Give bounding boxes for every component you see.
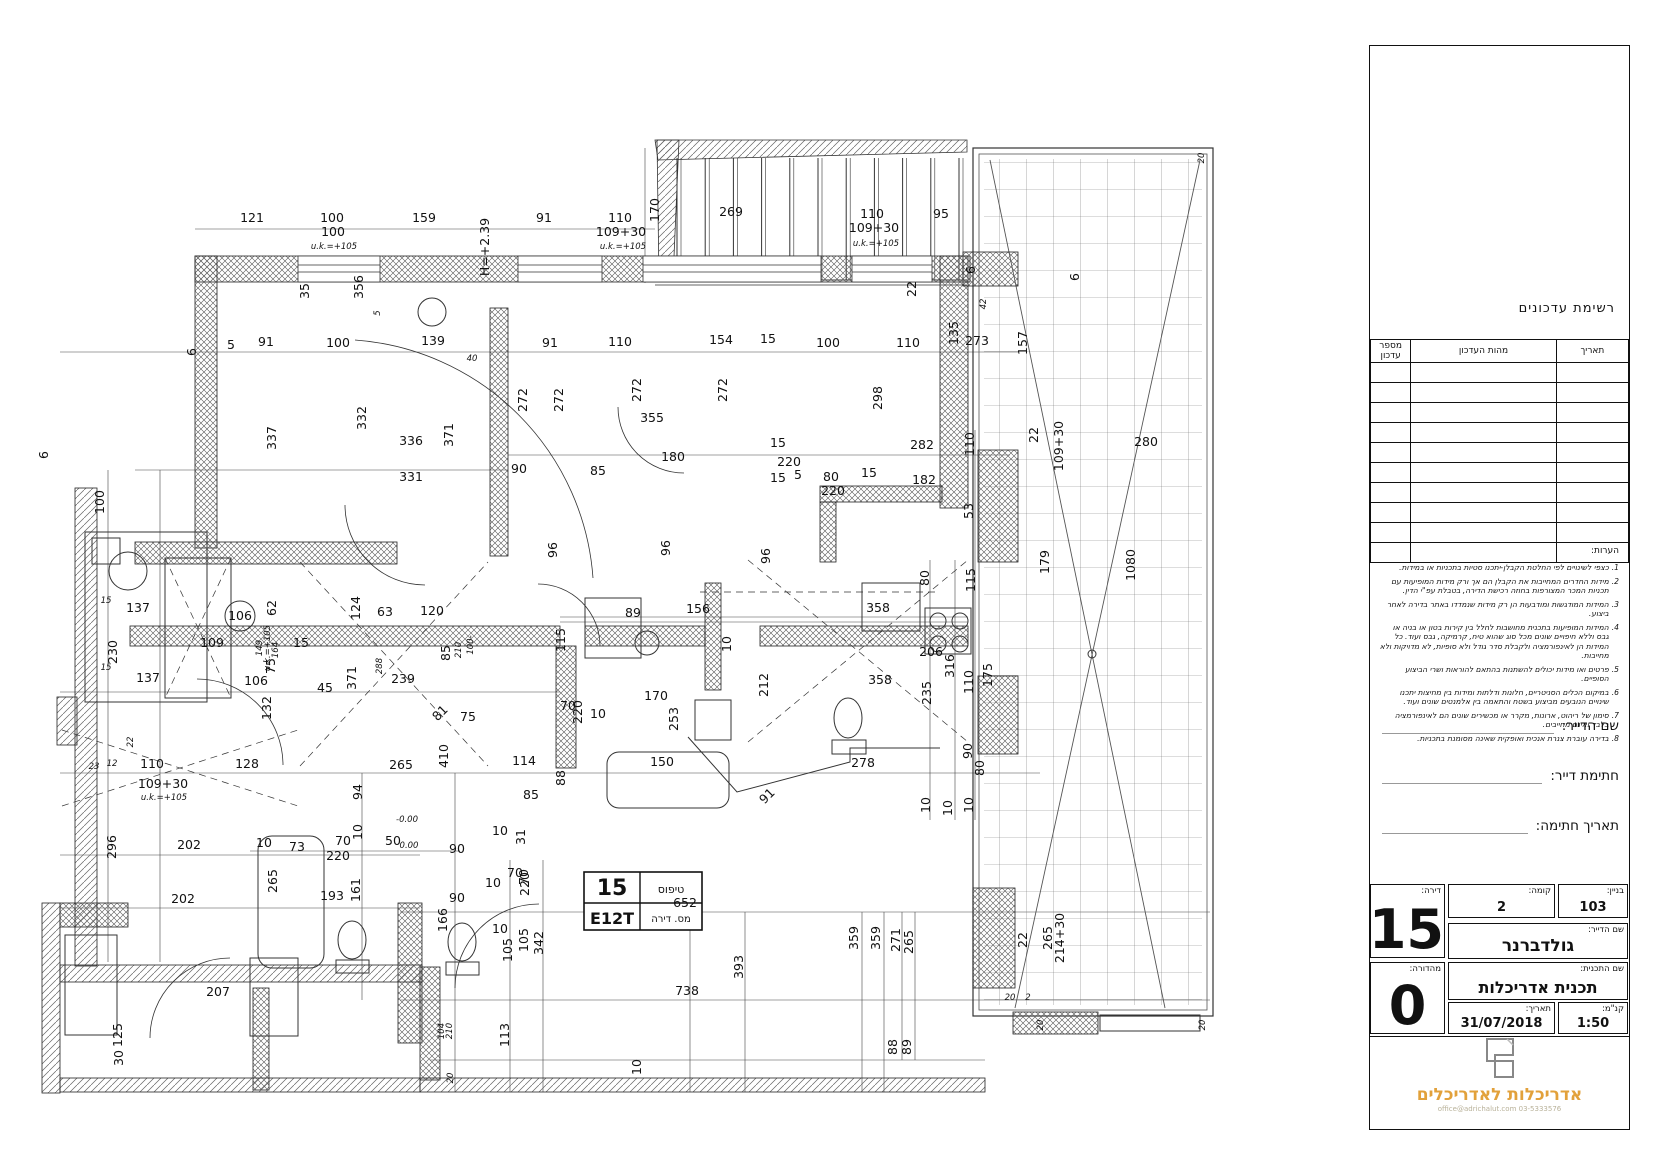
svg-text:96: 96	[545, 542, 560, 558]
revisions-col-date: תאריך	[1556, 340, 1628, 363]
note-item: 5.פרטים ואו מידות יכולים להשתנות בהתאם ל…	[1378, 665, 1619, 684]
svg-text:170: 170	[644, 688, 668, 703]
svg-text:5: 5	[794, 467, 802, 482]
svg-text:12: 12	[107, 759, 118, 769]
svg-text:10: 10	[629, 1059, 644, 1075]
svg-text:358: 358	[866, 600, 890, 615]
tenant-sign-label: חתימת דייר:	[1550, 768, 1619, 784]
svg-text:6: 6	[184, 348, 199, 356]
svg-text:150: 150	[650, 754, 674, 769]
svg-text:31: 31	[513, 829, 528, 845]
tenant-name-label: שם הדייר:	[1562, 718, 1619, 734]
svg-text:10: 10	[350, 824, 365, 840]
svg-text:110: 110	[608, 334, 632, 349]
building-label: בניין:	[1607, 886, 1624, 896]
svg-text:u.k.=+105: u.k.=+105	[853, 239, 899, 249]
svg-text:15: 15	[101, 663, 112, 673]
edition-value: 0	[1371, 979, 1444, 1033]
svg-text:10: 10	[256, 835, 272, 850]
svg-text:336: 336	[399, 433, 423, 448]
svg-text:154: 154	[709, 332, 733, 347]
edition-label: מהדורה:	[1410, 964, 1442, 974]
svg-text:1080: 1080	[1123, 549, 1138, 581]
floor-value: 2	[1449, 900, 1554, 915]
svg-text:15: 15	[293, 635, 309, 650]
svg-text:15: 15	[770, 435, 786, 450]
svg-text:269: 269	[719, 204, 743, 219]
svg-text:10: 10	[719, 636, 734, 652]
svg-text:6: 6	[963, 266, 978, 274]
svg-text:91: 91	[756, 785, 778, 807]
svg-text:90: 90	[960, 743, 975, 759]
plan-name-box: שם התכנית: תכנית אדריכלות	[1448, 962, 1628, 1000]
svg-text:137: 137	[126, 600, 150, 615]
note-item: 4.המידות המופיעות בתכנית מחושבות לחלל בי…	[1378, 623, 1619, 661]
signature-section: שם הדייר: חתימת דייר: תאריך חתימה:	[1382, 718, 1619, 868]
svg-text:22: 22	[904, 281, 919, 297]
scale-box: קנ"מ: 1:50	[1558, 1002, 1628, 1034]
drawing-sheet: 15טיפוסE12Tמס. דירה121100100u.k.=+105159…	[0, 0, 1657, 1172]
svg-text:85: 85	[590, 463, 606, 478]
svg-text:100: 100	[816, 335, 840, 350]
svg-text:179: 179	[1037, 550, 1052, 574]
svg-text:109+30: 109+30	[596, 224, 646, 239]
date-box: תאריך: 31/07/2018	[1448, 1002, 1555, 1034]
svg-text:298: 298	[870, 386, 885, 410]
svg-text:110: 110	[961, 670, 976, 694]
svg-text:210: 210	[445, 1023, 455, 1039]
tenant-label: שם הדייר:	[1588, 925, 1624, 935]
svg-text:80: 80	[972, 760, 987, 776]
svg-text:15: 15	[861, 465, 877, 480]
svg-text:212: 212	[756, 673, 771, 697]
svg-text:88: 88	[553, 770, 568, 786]
svg-text:180: 180	[661, 449, 685, 464]
svg-text:-0.00: -0.00	[396, 815, 418, 825]
revision-row	[1371, 523, 1629, 543]
svg-text:15: 15	[760, 331, 776, 346]
svg-text:53: 53	[961, 503, 976, 519]
svg-text:2: 2	[1025, 993, 1030, 1003]
svg-text:96: 96	[658, 540, 673, 556]
note-item: 6.במיקום הכלים הסניטריים, חלונות ודלתות …	[1378, 688, 1619, 707]
svg-text:106: 106	[244, 673, 268, 688]
svg-text:80: 80	[917, 570, 932, 586]
svg-text:105: 105	[516, 928, 531, 952]
svg-text:45: 45	[317, 680, 333, 695]
svg-text:265: 265	[901, 930, 916, 954]
svg-text:161: 161	[348, 878, 363, 902]
svg-text:125: 125	[110, 1023, 125, 1047]
note-item: 3.המידות המודגשות ומודבעות הן רק מידות ש…	[1378, 600, 1619, 619]
apartment-value: 15	[1371, 903, 1444, 957]
svg-text:20: 20	[1005, 993, 1016, 1003]
svg-text:75: 75	[263, 658, 278, 674]
notes-title: הערות:	[1378, 546, 1619, 557]
svg-text:23: 23	[89, 762, 100, 772]
svg-text:u.k.=+105: u.k.=+105	[311, 242, 357, 252]
svg-text:113: 113	[497, 1023, 512, 1047]
svg-text:0.00: 0.00	[400, 841, 419, 851]
svg-text:u.k.=+105: u.k.=+105	[600, 242, 646, 252]
logo-contact: office@adrichalut.com 03-5333576	[1370, 1105, 1629, 1113]
title-block: רשימת עדכונים תאריך מהות העדכון מספר עדכ…	[1369, 45, 1630, 1130]
svg-text:E12T: E12T	[590, 909, 634, 928]
tenant-value: גולדברנר	[1449, 936, 1627, 956]
svg-text:265: 265	[265, 869, 280, 893]
tenant-box: שם הדייר: גולדברנר	[1448, 923, 1628, 959]
svg-text:272: 272	[515, 388, 530, 412]
svg-text:272: 272	[629, 378, 644, 402]
revisions-col-desc: מהות העדכון	[1411, 340, 1557, 363]
svg-text:63: 63	[377, 604, 393, 619]
svg-text:359: 359	[868, 926, 883, 950]
svg-text:316: 316	[942, 654, 957, 678]
svg-text:15: 15	[770, 470, 786, 485]
building-value: 103	[1559, 900, 1627, 915]
svg-text:159: 159	[412, 210, 436, 225]
svg-text:342: 342	[531, 931, 546, 955]
building-box: בניין: 103	[1558, 884, 1628, 918]
svg-text:5: 5	[227, 337, 235, 352]
revisions-table: תאריך מהות העדכון מספר עדכון	[1370, 339, 1629, 563]
svg-text:22: 22	[126, 737, 136, 748]
svg-text:278: 278	[851, 755, 875, 770]
svg-text:124: 124	[348, 596, 363, 620]
svg-text:109: 109	[200, 635, 224, 650]
svg-text:20: 20	[1036, 1020, 1046, 1031]
svg-text:85: 85	[438, 645, 453, 661]
svg-text:100: 100	[321, 224, 345, 239]
svg-text:356: 356	[351, 275, 366, 299]
svg-text:110: 110	[896, 335, 920, 350]
svg-text:114: 114	[512, 753, 536, 768]
svg-text:10: 10	[590, 706, 606, 721]
svg-text:96: 96	[758, 548, 773, 564]
svg-text:410: 410	[436, 744, 451, 768]
svg-text:156: 156	[686, 601, 710, 616]
notes-list: 1.כצפי לשינויים לפי החלטת הקבלן-יתכנו סט…	[1378, 563, 1619, 743]
svg-text:371: 371	[344, 666, 359, 690]
svg-text:15: 15	[101, 596, 112, 606]
svg-text:10: 10	[492, 921, 508, 936]
sign-date-label: תאריך חתימה:	[1536, 818, 1619, 834]
svg-text:332: 332	[354, 406, 369, 430]
svg-text:235: 235	[919, 681, 934, 705]
svg-text:120: 120	[420, 603, 444, 618]
svg-text:121: 121	[240, 210, 264, 225]
svg-text:91: 91	[536, 210, 552, 225]
svg-text:282: 282	[910, 437, 934, 452]
svg-text:22: 22	[1015, 932, 1030, 948]
svg-text:10: 10	[940, 800, 955, 816]
svg-text:220: 220	[517, 872, 532, 896]
svg-text:288: 288	[375, 657, 385, 674]
revision-row	[1371, 463, 1629, 483]
svg-text:280: 280	[1134, 434, 1158, 449]
floor-plan: 15טיפוסE12Tמס. דירה121100100u.k.=+105159…	[0, 0, 1290, 1172]
svg-text:100: 100	[326, 335, 350, 350]
svg-text:62: 62	[264, 600, 279, 616]
svg-text:80: 80	[823, 469, 839, 484]
svg-text:30: 30	[111, 1050, 126, 1066]
floor-label: קומה:	[1528, 886, 1551, 896]
logo-box: אדריכלות לאדריכלים office@adrichalut.com…	[1370, 1036, 1629, 1128]
svg-text:393: 393	[731, 955, 746, 979]
svg-text:331: 331	[399, 469, 423, 484]
floor-box: קומה: 2	[1448, 884, 1555, 918]
svg-text:115: 115	[963, 568, 978, 592]
svg-text:20: 20	[1198, 1020, 1208, 1031]
sign-date-line[interactable]	[1382, 819, 1528, 834]
svg-text:220: 220	[777, 454, 801, 469]
svg-text:207: 207	[206, 984, 230, 999]
plan-name-label: שם התכנית:	[1580, 964, 1624, 974]
svg-text:132: 132	[259, 696, 274, 720]
note-item: 2.מידות החדרים המחייבות את הקבלן הם אך ו…	[1378, 577, 1619, 596]
svg-text:110: 110	[860, 206, 884, 221]
svg-text:193: 193	[320, 888, 344, 903]
svg-text:94: 94	[350, 784, 365, 800]
svg-text:90: 90	[449, 841, 465, 856]
svg-text:296: 296	[104, 835, 119, 859]
svg-text:738: 738	[675, 983, 699, 998]
revision-row	[1371, 503, 1629, 523]
svg-text:105: 105	[500, 938, 515, 962]
svg-text:90: 90	[449, 890, 465, 905]
date-value: 31/07/2018	[1449, 1016, 1554, 1031]
svg-text:220: 220	[326, 848, 350, 863]
walls	[42, 252, 1098, 1093]
svg-text:70: 70	[335, 833, 351, 848]
svg-text:272: 272	[551, 388, 566, 412]
svg-text:100: 100	[92, 490, 107, 514]
svg-text:35: 35	[297, 283, 312, 299]
svg-text:10: 10	[961, 797, 976, 813]
svg-text:89: 89	[899, 1039, 914, 1055]
svg-text:128: 128	[235, 756, 259, 771]
scale-label: קנ"מ:	[1602, 1004, 1624, 1014]
svg-text:206: 206	[919, 644, 943, 659]
svg-text:202: 202	[171, 891, 195, 906]
svg-text:22: 22	[1026, 427, 1041, 443]
svg-text:110: 110	[140, 756, 164, 771]
svg-text:230: 230	[105, 640, 120, 664]
tenant-name-line[interactable]	[1382, 719, 1554, 734]
revision-row	[1371, 443, 1629, 463]
svg-text:220: 220	[570, 700, 585, 724]
svg-text:6: 6	[1067, 273, 1082, 281]
svg-text:110: 110	[962, 432, 977, 456]
svg-text:20: 20	[1197, 153, 1207, 164]
revision-row	[1371, 383, 1629, 403]
plan-name-value: תכנית אדריכלות	[1449, 978, 1627, 997]
revision-row	[1371, 403, 1629, 423]
architect-logo-icon	[1477, 1037, 1523, 1079]
svg-text:73: 73	[289, 839, 305, 854]
svg-text:109+30: 109+30	[1051, 421, 1066, 471]
svg-text:מס. דירה: מס. דירה	[651, 914, 691, 925]
svg-text:75: 75	[460, 709, 476, 724]
svg-text:182: 182	[912, 472, 936, 487]
apartment-box: דירה: 15	[1370, 884, 1445, 958]
svg-text:10: 10	[492, 823, 508, 838]
svg-text:10: 10	[918, 797, 933, 813]
revision-row	[1371, 363, 1629, 383]
svg-text:100: 100	[320, 210, 344, 225]
date-label: תאריך:	[1526, 1004, 1551, 1014]
svg-text:652: 652	[673, 895, 697, 910]
svg-text:5: 5	[373, 310, 383, 315]
svg-text:371: 371	[441, 423, 456, 447]
svg-text:42: 42	[979, 299, 989, 310]
svg-text:20: 20	[446, 1073, 456, 1084]
svg-text:85: 85	[523, 787, 539, 802]
scale-value: 1:50	[1559, 1016, 1627, 1031]
svg-text:95: 95	[933, 206, 949, 221]
svg-text:110: 110	[608, 210, 632, 225]
edition-box: מהדורה: 0	[1370, 962, 1445, 1034]
revision-row	[1371, 483, 1629, 503]
note-item: 1.כצפי לשינויים לפי החלטת הקבלן-יתכנו סט…	[1378, 563, 1619, 572]
svg-text:89: 89	[625, 605, 641, 620]
svg-text:137: 137	[136, 670, 160, 685]
svg-text:139: 139	[421, 333, 445, 348]
svg-text:170: 170	[647, 198, 662, 222]
svg-text:202: 202	[177, 837, 201, 852]
svg-text:106: 106	[228, 608, 252, 623]
svg-text:88: 88	[885, 1039, 900, 1055]
svg-text:40: 40	[467, 354, 478, 364]
svg-text:115: 115	[553, 628, 568, 652]
tenant-sign-line[interactable]	[1382, 769, 1542, 784]
svg-text:u.k.=+105: u.k.=+105	[141, 793, 187, 803]
svg-text:355: 355	[640, 410, 664, 425]
logo-name: אדריכלות לאדריכלים	[1370, 1085, 1629, 1105]
svg-text:157: 157	[1015, 331, 1030, 355]
svg-text:359: 359	[846, 926, 861, 950]
apartment-label: דירה:	[1421, 886, 1441, 896]
revisions-title: רשימת עדכונים	[1519, 301, 1615, 316]
svg-text:337: 337	[264, 426, 279, 450]
revision-row	[1371, 423, 1629, 443]
revisions-col-num: מספר עדכון	[1371, 340, 1411, 363]
svg-text:6: 6	[36, 451, 51, 459]
svg-text:90: 90	[511, 461, 527, 476]
svg-text:273: 273	[965, 333, 989, 348]
svg-text:358: 358	[868, 672, 892, 687]
svg-text:272: 272	[715, 378, 730, 402]
svg-text:91: 91	[258, 334, 274, 349]
svg-text:220: 220	[821, 483, 845, 498]
svg-text:214+30: 214+30	[1052, 913, 1067, 963]
svg-text:253: 253	[666, 707, 681, 731]
notes-section: הערות: 1.כצפי לשינויים לפי החלטת הקבלן-י…	[1378, 546, 1619, 747]
svg-text:210: 210	[454, 642, 464, 658]
svg-text:135: 135	[946, 321, 961, 345]
svg-text:166: 166	[435, 908, 450, 932]
svg-text:265: 265	[389, 757, 413, 772]
svg-text:164: 164	[271, 642, 281, 658]
svg-text:15: 15	[597, 876, 628, 901]
svg-text:109+30: 109+30	[138, 776, 188, 791]
svg-text:H=+2.39: H=+2.39	[477, 218, 492, 276]
svg-text:239: 239	[391, 671, 415, 686]
svg-text:91: 91	[542, 335, 558, 350]
svg-text:10: 10	[485, 875, 501, 890]
svg-text:100-: 100-	[466, 635, 476, 654]
svg-text:175: 175	[980, 663, 995, 687]
svg-text:109+30: 109+30	[849, 220, 899, 235]
